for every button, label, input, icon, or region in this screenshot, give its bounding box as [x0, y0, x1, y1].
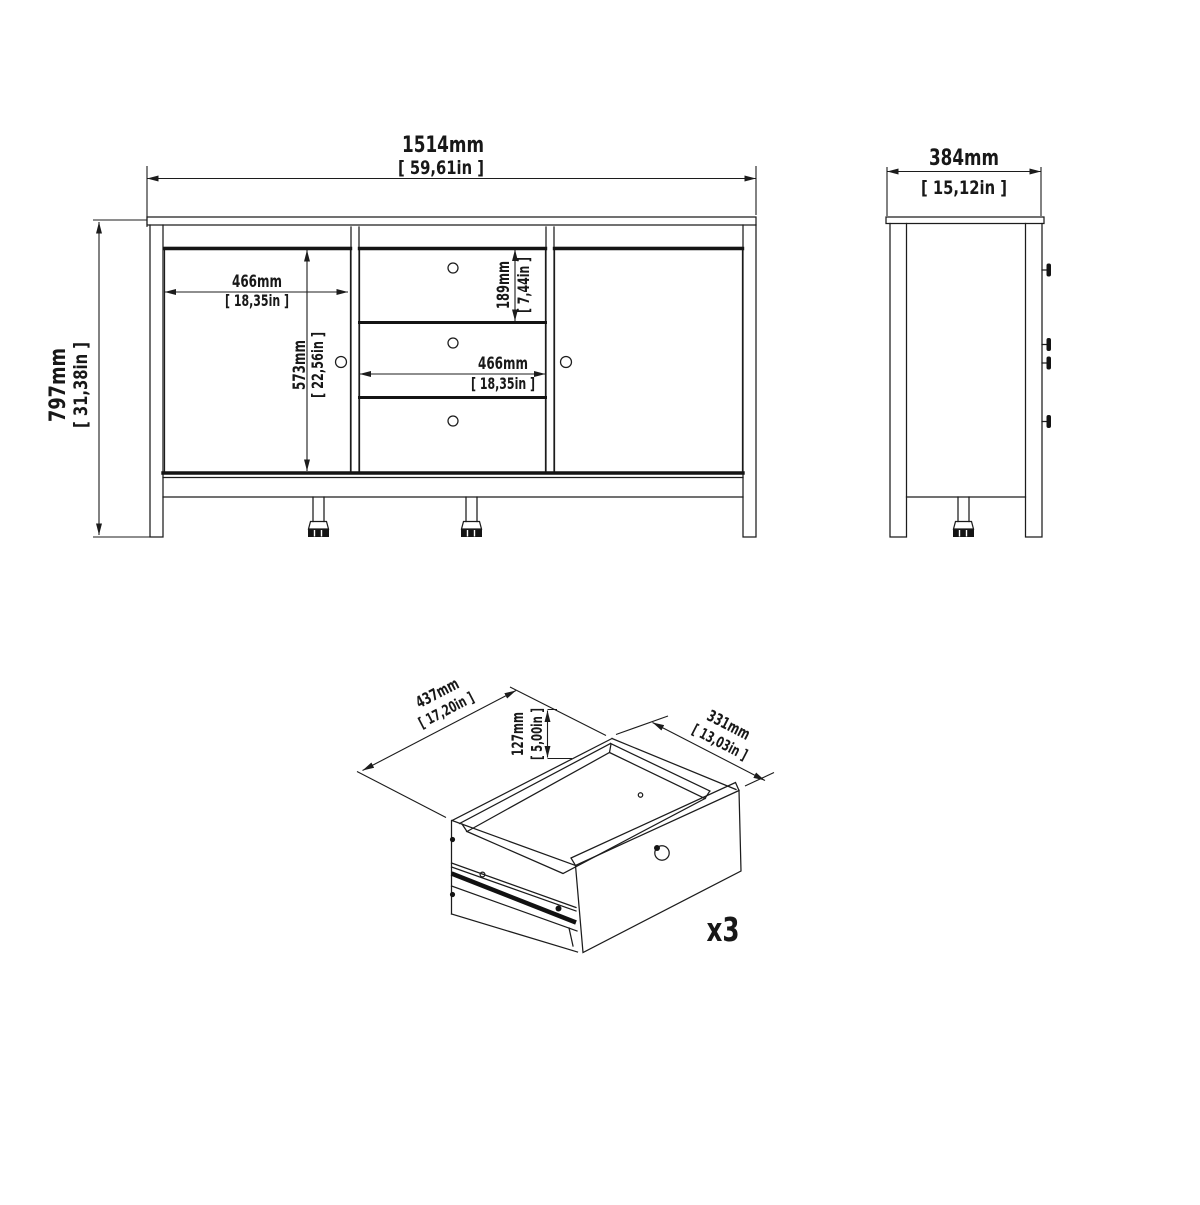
dim-drawer-width-inner: 331mm [ 13,03in ] — [616, 703, 774, 786]
side-screw-bottom — [450, 892, 455, 897]
dim-depth: 384mm [ 15,12in ] — [887, 146, 1041, 216]
front-foot-left — [308, 497, 329, 537]
dim-drawer-height: 189mm [ 7,44in ] — [494, 250, 533, 322]
dim-overall-height: 797mm [ 31,38in ] — [46, 220, 150, 537]
drawer-side-runner — [450, 821, 578, 953]
front-right-leg — [743, 225, 756, 537]
drawer-height-in-label: [ 7,44in ] — [514, 257, 533, 313]
overall-height-mm-label: 797mm — [46, 348, 71, 422]
bottom-rail — [163, 478, 743, 498]
drawer-box-height-mm-label: 127mm — [508, 712, 527, 756]
drawer-knob-shadow — [654, 845, 660, 851]
side-knobs — [1042, 264, 1051, 429]
front-top-panel — [147, 217, 756, 225]
front-foot-right — [461, 497, 482, 537]
drawer2-knob — [448, 338, 458, 348]
side-screw-top — [450, 837, 455, 842]
side-foot — [953, 497, 974, 537]
dim-drawer-box-height: 127mm [ 5,00in ] — [508, 708, 572, 760]
front-view: 1514mm [ 59,61in ] 797mm [ 31,38in ] 466… — [46, 133, 756, 537]
drawer1-knob — [448, 263, 458, 273]
drawer-box-height-in-label: [ 5,00in ] — [528, 708, 546, 760]
left-door-knob — [336, 357, 347, 368]
depth-mm-label: 384mm — [929, 146, 999, 171]
dim-drawer-width: 466mm [ 18,35in ] — [360, 354, 546, 393]
door-height-mm-label: 573mm — [290, 340, 310, 390]
door-width-mm-label: 466mm — [232, 272, 282, 292]
drawer-quantity-label: x3 — [707, 910, 740, 949]
dim-drawer-depth-overall: 437mm [ 17,20in ] — [357, 671, 606, 818]
front-left-leg — [150, 225, 163, 537]
side-back-leg — [1026, 224, 1043, 538]
side-top-panel — [886, 217, 1044, 224]
drawer-height-mm-label: 189mm — [494, 261, 514, 309]
dim-overall-width: 1514mm [ 59,61in ] — [147, 133, 756, 227]
side-front-leg — [890, 224, 907, 538]
right-door — [555, 248, 743, 473]
depth-in-label: [ 15,12in ] — [921, 177, 1007, 199]
dim-door-height: 573mm [ 22,56in ] — [290, 250, 327, 471]
drawer-width-mm-label: 466mm — [478, 354, 528, 374]
drawer3-knob — [448, 416, 458, 426]
runner-pin — [556, 906, 562, 912]
overall-height-in-label: [ 31,38in ] — [70, 342, 92, 428]
overall-width-in-label: [ 59,61in ] — [398, 157, 484, 179]
overall-width-mm-label: 1514mm — [402, 133, 484, 158]
dim-door-width: 466mm [ 18,35in ] — [165, 272, 349, 310]
side-view: 384mm [ 15,12in ] — [886, 146, 1051, 537]
right-door-knob — [561, 357, 572, 368]
drawer-view: 437mm [ 17,20in ] 127mm [ 5,00in ] 331mm… — [357, 671, 774, 953]
door-width-in-label: [ 18,35in ] — [225, 291, 289, 310]
door-height-in-label: [ 22,56in ] — [308, 332, 327, 398]
back-panel-hole — [638, 793, 642, 797]
drawer-width-in-label: [ 18,35in ] — [471, 374, 535, 393]
furniture-dimension-sheet: 1514mm [ 59,61in ] 797mm [ 31,38in ] 466… — [0, 0, 1200, 1200]
technical-drawing: 1514mm [ 59,61in ] 797mm [ 31,38in ] 466… — [0, 0, 1200, 1200]
